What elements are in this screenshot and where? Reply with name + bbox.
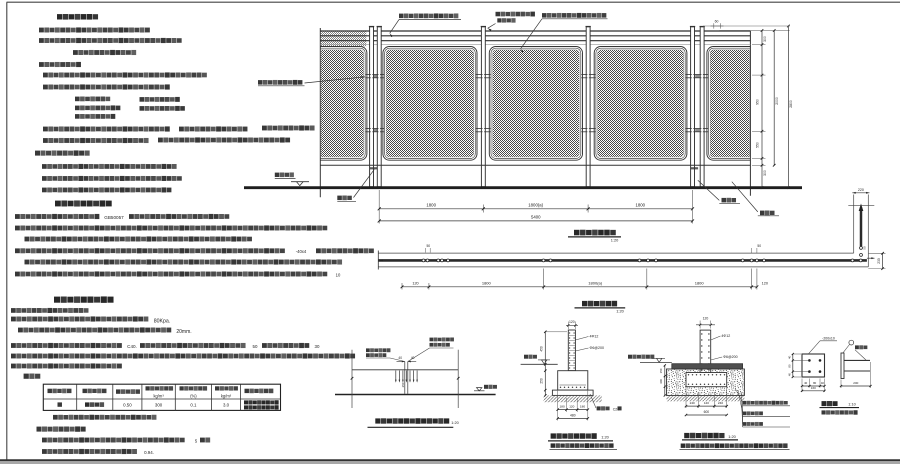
svg-text:2800: 2800 (789, 100, 793, 108)
svg-text:60: 60 (715, 19, 719, 23)
svg-text:0.94.: 0.94. (144, 450, 154, 455)
svg-text:200: 200 (853, 381, 858, 385)
svg-text:120: 120 (569, 320, 575, 324)
svg-text:0.50: 0.50 (123, 403, 132, 408)
svg-text:1:10: 1:10 (848, 403, 855, 407)
svg-text:50: 50 (426, 244, 430, 248)
svg-text:230: 230 (877, 258, 881, 264)
svg-text:GB50057: GB50057 (104, 215, 124, 220)
svg-text:160: 160 (811, 386, 816, 390)
svg-text:600: 600 (704, 410, 710, 414)
svg-text:4Φ12: 4Φ12 (721, 334, 730, 338)
svg-text:3.0: 3.0 (223, 403, 230, 408)
svg-text:1800: 1800 (695, 280, 705, 285)
svg-text:450: 450 (540, 346, 544, 352)
svg-text:C40.: C40. (127, 344, 137, 349)
svg-text:300: 300 (659, 379, 663, 384)
svg-text:1:20: 1:20 (451, 421, 458, 425)
svg-text:240: 240 (690, 401, 695, 405)
svg-text:480: 480 (570, 414, 576, 418)
svg-text:300: 300 (155, 403, 163, 408)
svg-text:2000: 2000 (775, 97, 779, 105)
svg-text:120: 120 (412, 281, 418, 285)
svg-text:40: 40 (787, 373, 791, 377)
svg-text:40: 40 (787, 355, 791, 359)
svg-text:950: 950 (756, 99, 760, 105)
svg-text:1800: 1800 (636, 203, 646, 208)
svg-text:80Kpa.: 80Kpa. (154, 318, 170, 324)
svg-text:300: 300 (763, 36, 767, 42)
svg-text:300: 300 (763, 170, 767, 176)
svg-text:150: 150 (659, 368, 663, 373)
svg-text:120: 120 (762, 281, 768, 285)
svg-text:40: 40 (804, 381, 808, 385)
svg-text:-200x10: -200x10 (822, 337, 835, 341)
svg-text:80: 80 (813, 381, 817, 385)
svg-text:kg/m³: kg/m³ (153, 394, 164, 399)
svg-text:180: 180 (580, 405, 585, 409)
svg-text:1:20: 1:20 (728, 434, 736, 439)
svg-text:1800: 1800 (426, 203, 436, 208)
svg-text:(%): (%) (190, 394, 197, 399)
svg-text:0.1: 0.1 (190, 403, 197, 408)
svg-text:1800(a): 1800(a) (528, 203, 543, 208)
svg-text:120: 120 (704, 401, 709, 405)
svg-text:80: 80 (787, 364, 791, 368)
svg-text:120: 120 (569, 405, 574, 409)
svg-text:250: 250 (540, 378, 544, 384)
svg-text:30: 30 (315, 344, 320, 349)
svg-text:1:20: 1:20 (616, 308, 624, 313)
svg-text:180: 180 (560, 405, 565, 409)
svg-text:220: 220 (858, 188, 864, 192)
svg-text:50: 50 (757, 244, 761, 248)
svg-text:40: 40 (821, 381, 825, 385)
svg-text:1800: 1800 (482, 280, 492, 285)
svg-text:1:20: 1:20 (601, 435, 609, 440)
svg-text:kg/m³: kg/m³ (221, 394, 232, 399)
svg-text:50: 50 (863, 246, 867, 250)
svg-text:120: 120 (703, 316, 709, 320)
svg-text:1800(a): 1800(a) (588, 280, 602, 285)
svg-text:250: 250 (401, 382, 405, 387)
svg-text:20mm.: 20mm. (176, 329, 191, 335)
svg-text:-40x4: -40x4 (296, 249, 307, 254)
svg-text:50: 50 (253, 344, 258, 349)
svg-text:40: 40 (398, 356, 402, 360)
svg-text:4Φ12: 4Φ12 (590, 335, 599, 339)
svg-text:Φ6@200: Φ6@200 (723, 355, 738, 359)
svg-text:5400: 5400 (531, 215, 541, 220)
svg-text:10: 10 (336, 272, 341, 277)
svg-text:1:20: 1:20 (611, 237, 619, 242)
svg-text:550: 550 (756, 142, 760, 148)
svg-text:240: 240 (718, 401, 723, 405)
svg-text:Φ6@200: Φ6@200 (590, 346, 605, 350)
